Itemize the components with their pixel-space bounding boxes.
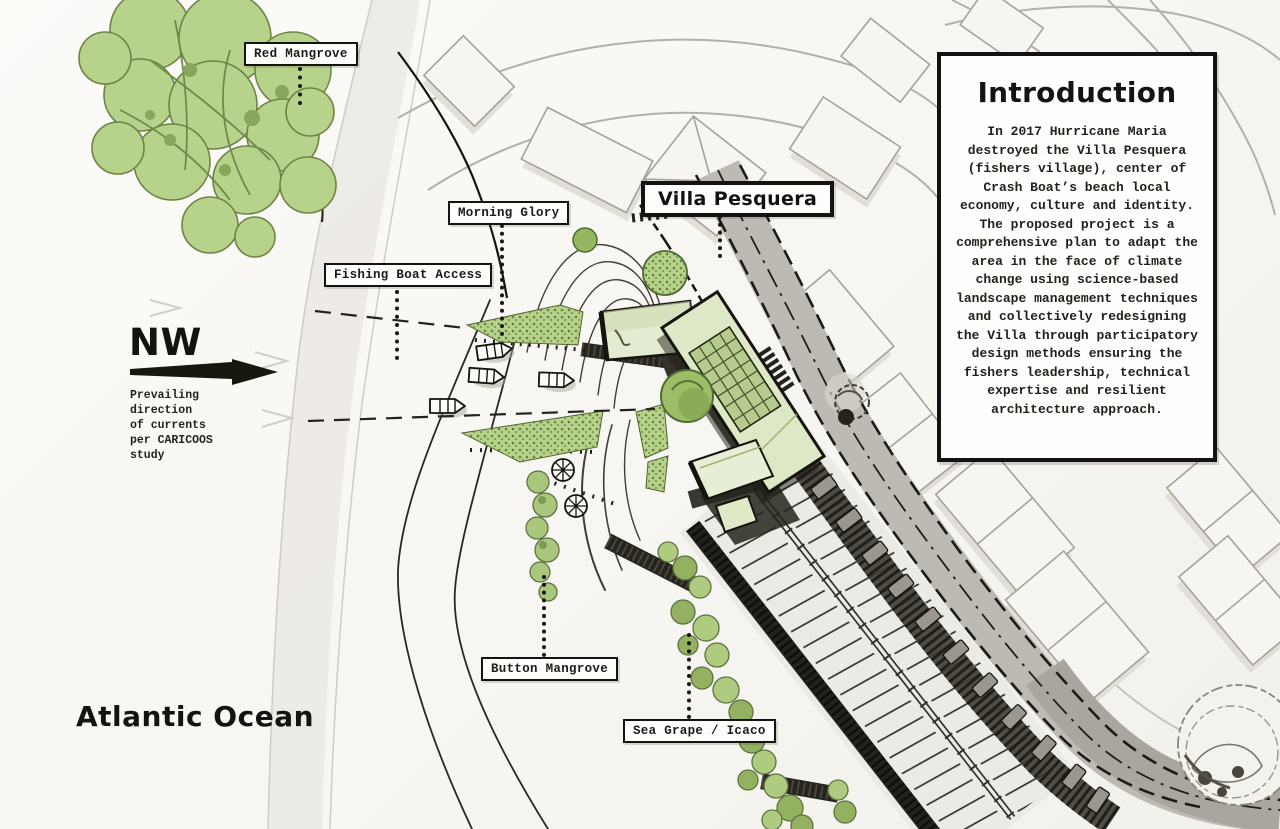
leader-morning-glory: [500, 224, 504, 336]
leader-red-mangrove: [298, 67, 302, 105]
compass-direction: NW: [129, 324, 202, 361]
compass-caption: Prevailing direction of currents per CAR…: [130, 388, 240, 463]
leader-villa-pesquera: [718, 215, 722, 258]
site-plan-poster: Red Mangrove Morning Glory Fishing Boat …: [0, 0, 1280, 829]
red-mangrove-vegetation: [79, 0, 336, 257]
introduction-box: Introduction In 2017 Hurricane Maria des…: [937, 52, 1217, 462]
label-fishing-boat-access-text: Fishing Boat Access: [334, 268, 482, 282]
label-sea-grape-text: Sea Grape / Icaco: [633, 724, 766, 738]
leader-fishing-boat-access: [395, 290, 399, 360]
label-villa-pesquera-text: Villa Pesquera: [658, 188, 817, 210]
label-button-mangrove-text: Button Mangrove: [491, 662, 608, 676]
label-sea-grape: Sea Grape / Icaco: [623, 719, 776, 743]
introduction-heading: Introduction: [953, 76, 1201, 109]
label-button-mangrove: Button Mangrove: [481, 657, 618, 681]
label-red-mangrove-text: Red Mangrove: [254, 47, 348, 61]
label-fishing-boat-access: Fishing Boat Access: [324, 263, 492, 287]
leader-sea-grape: [687, 633, 691, 719]
fishing-boats: [430, 341, 576, 418]
leader-button-mangrove: [542, 575, 546, 657]
label-morning-glory-text: Morning Glory: [458, 206, 559, 220]
introduction-body: In 2017 Hurricane Maria destroyed the Vi…: [953, 123, 1201, 419]
compass-arrow-icon: [130, 359, 280, 387]
label-morning-glory: Morning Glory: [448, 201, 569, 225]
label-villa-pesquera: Villa Pesquera: [641, 181, 834, 217]
ocean-name: Atlantic Ocean: [76, 700, 314, 733]
label-red-mangrove: Red Mangrove: [244, 42, 358, 66]
